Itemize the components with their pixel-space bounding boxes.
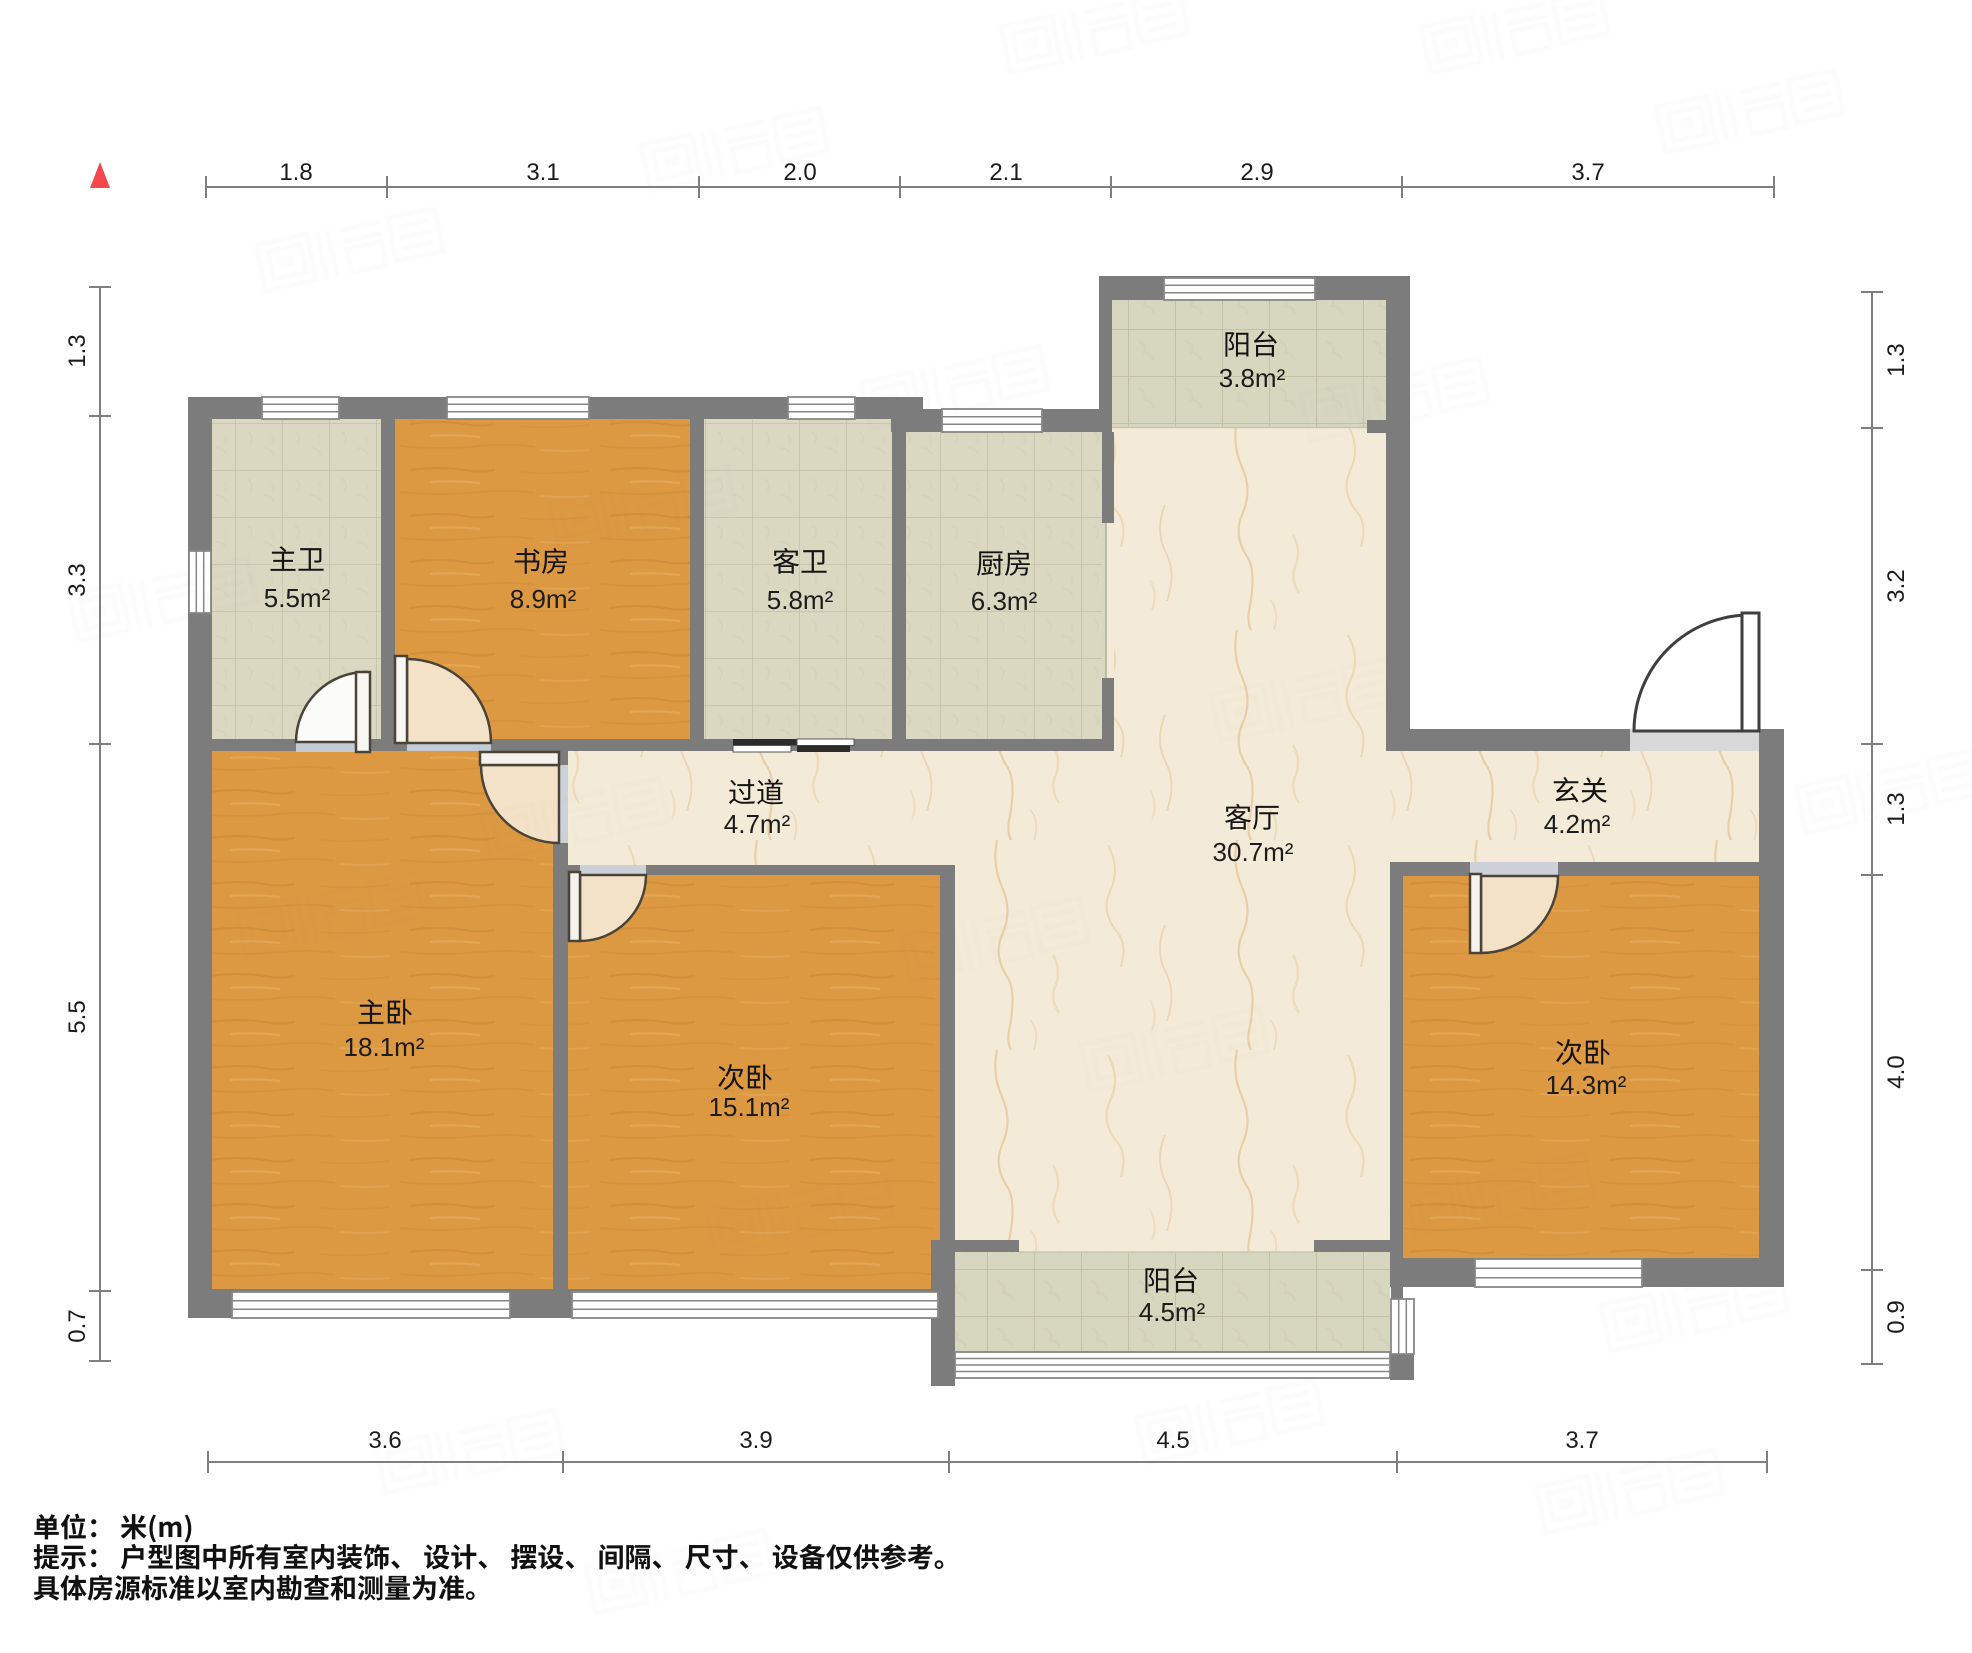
svg-text:2.9: 2.9	[1240, 159, 1273, 186]
svg-text:2.0: 2.0	[783, 159, 816, 186]
svg-text:3.9: 3.9	[739, 1427, 772, 1454]
svg-text:3.7: 3.7	[1571, 159, 1604, 186]
svg-text:4.2m²: 4.2m²	[1544, 809, 1611, 839]
svg-text:3.2: 3.2	[1883, 569, 1910, 602]
svg-text:3.8m²: 3.8m²	[1219, 363, 1286, 393]
svg-text:3.1: 3.1	[526, 159, 559, 186]
svg-text:0.7: 0.7	[64, 1309, 91, 1342]
svg-text:3.7: 3.7	[1565, 1427, 1598, 1454]
svg-text:5.5: 5.5	[64, 1000, 91, 1033]
svg-text:4.7m²: 4.7m²	[724, 809, 791, 839]
svg-text:1.8: 1.8	[279, 159, 312, 186]
svg-text:15.1m²: 15.1m²	[709, 1092, 790, 1122]
svg-text:0.9: 0.9	[1883, 1300, 1910, 1333]
svg-text:18.1m²: 18.1m²	[344, 1032, 425, 1062]
svg-text:4.0: 4.0	[1883, 1055, 1910, 1088]
svg-text:2.1: 2.1	[989, 159, 1022, 186]
svg-text:8.9m²: 8.9m²	[510, 584, 577, 614]
svg-text:6.3m²: 6.3m²	[971, 586, 1038, 616]
svg-text:14.3m²: 14.3m²	[1546, 1070, 1627, 1100]
svg-text:5.8m²: 5.8m²	[767, 585, 834, 615]
svg-text:1.3: 1.3	[64, 334, 91, 367]
svg-text:5.5m²: 5.5m²	[264, 583, 331, 613]
svg-text:30.7m²: 30.7m²	[1213, 837, 1294, 867]
svg-text:1.3: 1.3	[1883, 343, 1910, 376]
svg-text:4.5m²: 4.5m²	[1139, 1297, 1206, 1327]
